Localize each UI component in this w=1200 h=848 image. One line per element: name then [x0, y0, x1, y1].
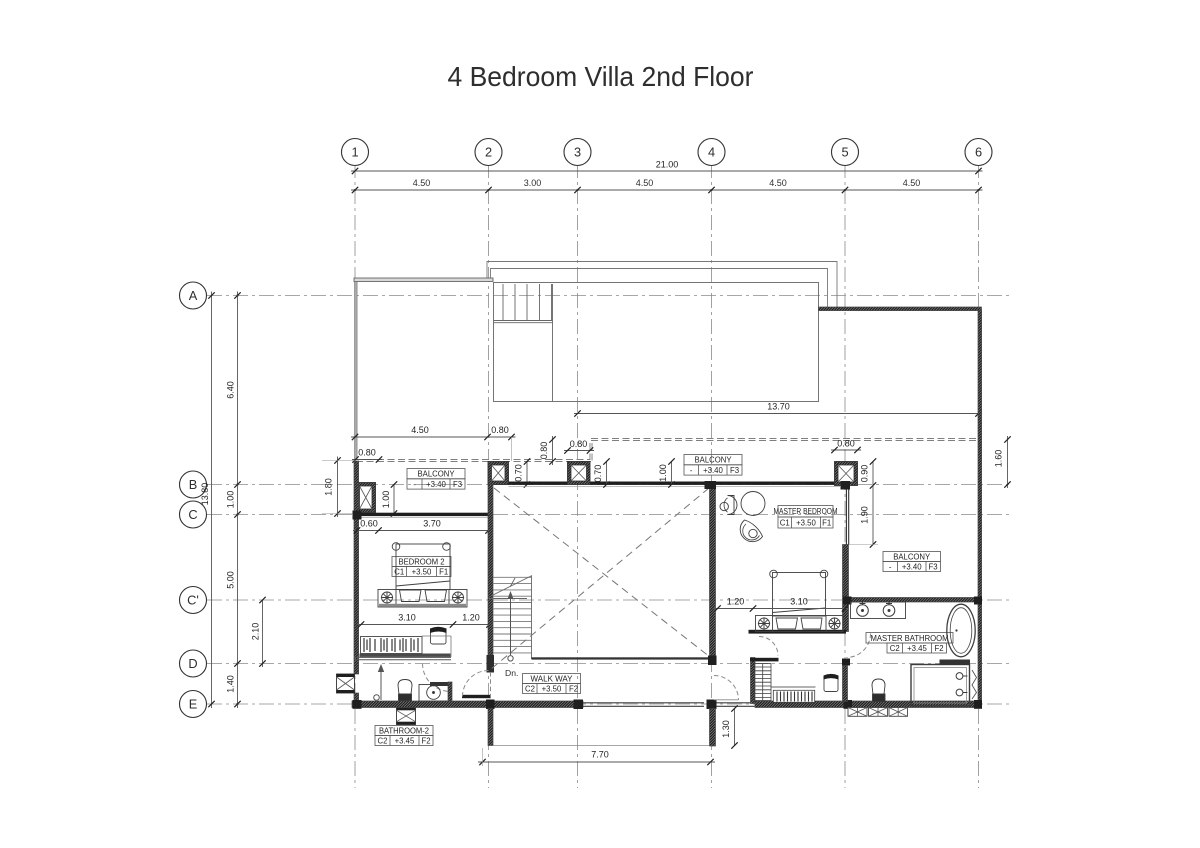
svg-text:+3.40: +3.40 — [703, 466, 723, 475]
svg-text:2.10: 2.10 — [251, 623, 261, 641]
svg-text:3.10: 3.10 — [398, 613, 416, 623]
svg-text:1.40: 1.40 — [226, 675, 236, 693]
svg-text:0.80: 0.80 — [491, 425, 509, 435]
svg-text:0.90: 0.90 — [860, 465, 870, 483]
svg-text:+3.45: +3.45 — [907, 644, 927, 653]
svg-text:C2: C2 — [525, 685, 535, 694]
svg-text:BALCONY: BALCONY — [695, 456, 733, 465]
svg-text:MASTER BEDROOM: MASTER BEDROOM — [774, 507, 838, 516]
svg-text:E: E — [189, 697, 198, 712]
svg-text:5.00: 5.00 — [226, 571, 236, 589]
svg-text:1: 1 — [351, 145, 358, 160]
svg-text:13.70: 13.70 — [767, 402, 790, 412]
svg-text:F3: F3 — [453, 480, 462, 489]
svg-text:1.90: 1.90 — [860, 506, 870, 524]
svg-text:0.80: 0.80 — [358, 448, 376, 458]
svg-text:F3: F3 — [928, 563, 937, 572]
svg-text:0.70: 0.70 — [593, 465, 603, 483]
svg-text:WALK WAY: WALK WAY — [531, 675, 574, 684]
svg-text:+3.45: +3.45 — [395, 737, 415, 746]
svg-text:B: B — [189, 477, 198, 492]
svg-text:+3.50: +3.50 — [412, 568, 432, 577]
svg-text:3.10: 3.10 — [790, 597, 808, 607]
svg-text:F3: F3 — [730, 466, 739, 475]
svg-text:+3.40: +3.40 — [902, 563, 922, 572]
svg-text:F2: F2 — [569, 685, 578, 694]
svg-text:-: - — [690, 466, 693, 475]
svg-text:C2: C2 — [378, 737, 388, 746]
svg-text:1.80: 1.80 — [324, 478, 334, 496]
svg-text:1.00: 1.00 — [226, 491, 236, 509]
svg-text:1.00: 1.00 — [658, 464, 668, 482]
svg-text:5: 5 — [841, 145, 848, 160]
svg-text:+3.40: +3.40 — [426, 480, 446, 489]
svg-text:0.80: 0.80 — [570, 439, 588, 449]
svg-text:F1: F1 — [439, 568, 448, 577]
svg-text:4.50: 4.50 — [413, 178, 431, 188]
svg-text:4 Bedroom Villa 2nd Floor: 4 Bedroom Villa 2nd Floor — [448, 61, 754, 92]
svg-text:F1: F1 — [822, 519, 831, 528]
svg-text:C1: C1 — [780, 519, 790, 528]
svg-text:2: 2 — [485, 145, 492, 160]
svg-text:1.20: 1.20 — [462, 613, 480, 623]
svg-text:BATHROOM-2: BATHROOM-2 — [379, 727, 429, 736]
svg-text:1.20: 1.20 — [727, 597, 745, 607]
svg-text:0.80: 0.80 — [837, 439, 855, 449]
svg-text:1.60: 1.60 — [994, 450, 1004, 468]
svg-text:6.40: 6.40 — [226, 381, 236, 399]
svg-text:BALCONY: BALCONY — [418, 470, 456, 479]
svg-text:-: - — [889, 563, 892, 572]
svg-text:F2: F2 — [934, 644, 943, 653]
svg-text:+3.50: +3.50 — [542, 685, 562, 694]
svg-text:7.70: 7.70 — [591, 750, 609, 760]
svg-text:1.30: 1.30 — [721, 720, 731, 738]
svg-text:-: - — [413, 480, 416, 489]
svg-text:4.50: 4.50 — [769, 178, 787, 188]
svg-text:BALCONY: BALCONY — [893, 553, 931, 562]
svg-text:3.00: 3.00 — [524, 178, 542, 188]
svg-text:21.00: 21.00 — [656, 160, 679, 170]
svg-text:6: 6 — [975, 145, 982, 160]
svg-text:4.50: 4.50 — [411, 425, 429, 435]
svg-text:C: C — [188, 507, 197, 522]
svg-text:C2: C2 — [890, 644, 900, 653]
svg-text:3: 3 — [574, 145, 581, 160]
svg-text:13.80: 13.80 — [200, 483, 210, 506]
svg-text:0.70: 0.70 — [514, 464, 524, 482]
svg-text:Dn.: Dn. — [505, 668, 518, 678]
svg-text:F2: F2 — [421, 737, 430, 746]
svg-text:0.60: 0.60 — [360, 519, 378, 529]
svg-text:+3.50: +3.50 — [796, 519, 816, 528]
svg-text:3.70: 3.70 — [423, 519, 441, 529]
svg-text:4: 4 — [708, 145, 715, 160]
svg-text:0.80: 0.80 — [539, 442, 549, 460]
svg-text:1.00: 1.00 — [381, 491, 391, 509]
svg-text:D: D — [188, 656, 197, 671]
svg-text:4.50: 4.50 — [636, 178, 654, 188]
svg-text:A: A — [189, 288, 198, 303]
svg-text:C': C' — [187, 593, 199, 608]
svg-text:4.50: 4.50 — [903, 178, 921, 188]
svg-text:MASTER BATHROOM: MASTER BATHROOM — [871, 634, 949, 643]
svg-text:BEDROOM 2: BEDROOM 2 — [399, 558, 445, 567]
